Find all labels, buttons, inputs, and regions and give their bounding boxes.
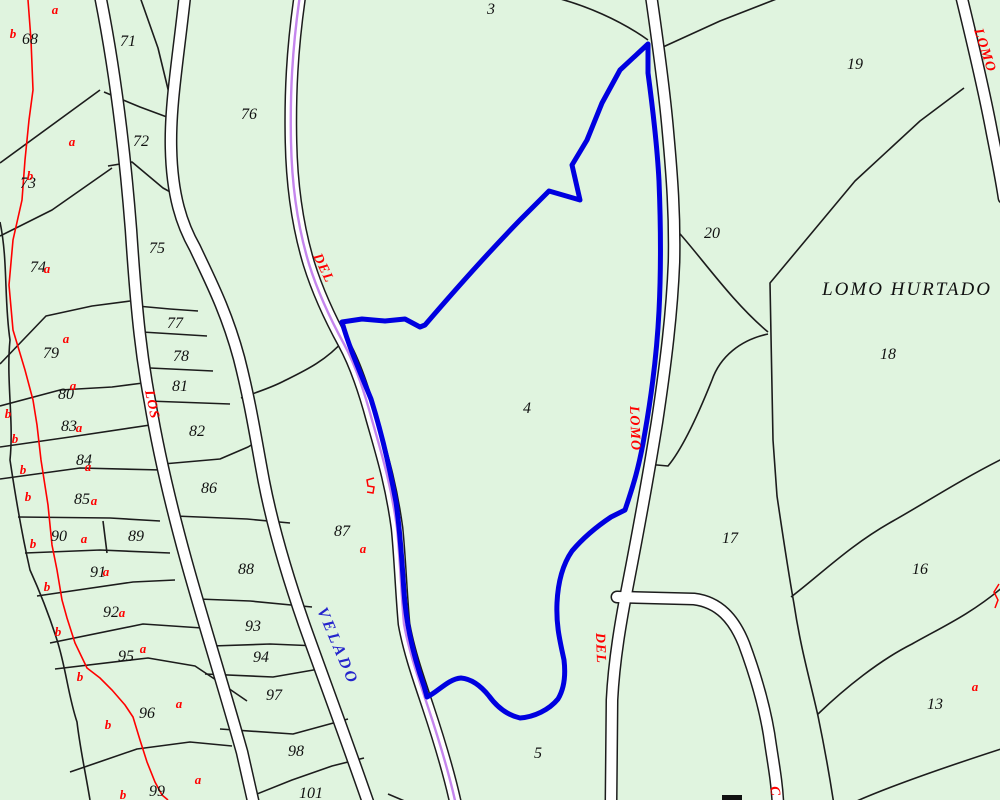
parcel-number-81: 81: [172, 378, 188, 395]
parcel-number-17: 17: [722, 530, 739, 547]
subparcel-letter-a: a: [52, 2, 59, 17]
parcel-number-18: 18: [880, 346, 896, 363]
parcel-number-71: 71: [120, 33, 136, 50]
subparcel-letter-a: a: [44, 261, 51, 276]
parcel-number-79: 79: [43, 345, 59, 362]
parcel-number-97: 97: [266, 687, 283, 704]
parcel-number-77: 77: [167, 315, 184, 332]
parcel-number-87: 87: [334, 523, 351, 540]
parcel-number-75: 75: [149, 240, 165, 257]
parcel-number-93: 93: [245, 618, 261, 635]
subparcel-letter-b: b: [77, 669, 84, 684]
parcel-number-95: 95: [118, 648, 134, 665]
subparcel-letter-a: a: [119, 605, 126, 620]
subparcel-letter-a: a: [69, 134, 76, 149]
subparcel-letter-a: a: [76, 420, 83, 435]
subparcel-letter-b: b: [105, 717, 112, 732]
subparcel-letter-a: a: [140, 641, 147, 656]
subparcel-letter-a: a: [91, 493, 98, 508]
subparcel-letter-a: a: [63, 331, 70, 346]
parcel-number-82: 82: [189, 423, 205, 440]
subparcel-letter-b: b: [120, 787, 127, 800]
parcel-number-78: 78: [173, 348, 189, 365]
parcel-number-16: 16: [912, 561, 928, 578]
parcel-number-76: 76: [241, 106, 257, 123]
parcel-number-99: 99: [149, 783, 165, 800]
road-name-lomo: LOMO: [626, 405, 643, 452]
parcel-number-101: 101: [299, 785, 323, 800]
subparcel-letter-a: a: [85, 459, 92, 474]
subparcel-letter-a: a: [195, 772, 202, 787]
parcel-number-94: 94: [253, 649, 269, 666]
parcel-number-86: 86: [201, 480, 217, 497]
subparcel-letter-a: a: [81, 531, 88, 546]
subparcel-letter-a: a: [176, 696, 183, 711]
parcel-number-20: 20: [704, 225, 720, 242]
parcel-number-92: 92: [103, 604, 119, 621]
subparcel-letter-b: b: [55, 624, 62, 639]
subparcel-letter-a: a: [360, 541, 367, 556]
parcel-number-68: 68: [22, 31, 38, 48]
parcel-number-4: 4: [523, 400, 531, 417]
parcel-number-13: 13: [927, 696, 943, 713]
parcel-number-72: 72: [133, 133, 149, 150]
parcel-number-3: 3: [486, 1, 495, 18]
subparcel-letter-b: b: [30, 536, 37, 551]
parcel-number-85: 85: [74, 491, 90, 508]
subparcel-letter-b: b: [44, 579, 51, 594]
subparcel-letter-a: a: [972, 679, 979, 694]
subparcel-letter-b: b: [5, 406, 12, 421]
road-name-del: DEL: [592, 632, 608, 665]
parcel-number-96: 96: [139, 705, 155, 722]
parcel-number-89: 89: [128, 528, 144, 545]
parcel-number-83: 83: [61, 418, 77, 435]
subparcel-letter-b: b: [25, 489, 32, 504]
parcel-number-90: 90: [51, 528, 67, 545]
subparcel-letter-b: b: [10, 26, 17, 41]
parcel-number-88: 88: [238, 561, 254, 578]
area-name-label: LOMO HURTADO: [821, 279, 992, 300]
subparcel-letter-b: b: [27, 168, 34, 183]
subparcel-letter-b: b: [20, 462, 27, 477]
parcel-number-98: 98: [288, 743, 304, 760]
parcel-number-19: 19: [847, 56, 863, 73]
subparcel-letter-a: a: [70, 378, 77, 393]
cadastral-map: LOMO HURTADO 345131617181920687172737475…: [0, 0, 1000, 800]
subparcel-letter-a: a: [103, 564, 110, 579]
parcel-number-5: 5: [534, 745, 542, 762]
cadastral-map-viewport: LOMO HURTADO 345131617181920687172737475…: [0, 0, 1000, 800]
building-footprint: [722, 795, 742, 800]
subparcel-letter-b: b: [12, 431, 19, 446]
